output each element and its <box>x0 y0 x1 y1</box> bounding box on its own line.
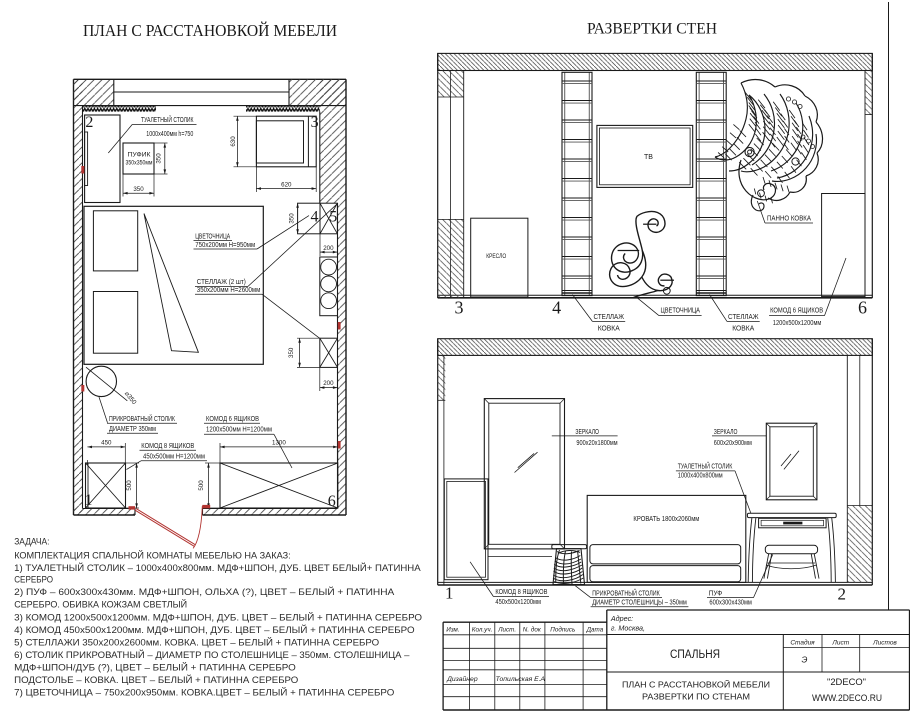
svg-text:ПУФИК: ПУФИК <box>128 151 151 158</box>
svg-text:ДИАМЕТР СТОЛЕШНИЦЫ – 350мм: ДИАМЕТР СТОЛЕШНИЦЫ – 350мм <box>592 600 687 607</box>
svg-text:Лист.: Лист. <box>497 627 516 634</box>
svg-text:СЕРЕБРО: СЕРЕБРО <box>14 575 53 586</box>
svg-text:350: 350 <box>288 347 295 358</box>
svg-text:СТЕЛЛАЖ: СТЕЛЛАЖ <box>728 314 759 321</box>
svg-text:2: 2 <box>85 114 93 131</box>
svg-text:WWW.2DECO.RU: WWW.2DECO.RU <box>812 693 882 703</box>
svg-text:350х350мм: 350х350мм <box>126 159 153 166</box>
svg-text:6) СТОЛИК ПРИКРОВАТНЫЙ – Д: 6) СТОЛИК ПРИКРОВАТНЫЙ – ДИАМЕТР ПО СТОЛ… <box>14 649 410 661</box>
svg-text:ТУАЛЕТНЫЙ СТОЛИК: ТУАЛЕТНЫЙ СТОЛИК <box>678 461 733 470</box>
svg-text:ПАННО КОВКА: ПАННО КОВКА <box>767 216 811 223</box>
svg-text:600х300х430мм: 600х300х430мм <box>709 600 752 607</box>
svg-text:Лист: Лист <box>831 639 849 646</box>
svg-text:ПРИКРОВАТНЫЙ СТОЛИК: ПРИКРОВАТНЫЙ СТОЛИК <box>592 588 660 597</box>
svg-text:ТУАЛЕТНЫЙ СТОЛИК: ТУАЛЕТНЫЙ СТОЛИК <box>141 115 194 124</box>
svg-text:КОМОД 8 ЯЩИКОВ: КОМОД 8 ЯЩИКОВ <box>141 443 194 450</box>
svg-text:КРЕСЛО: КРЕСЛО <box>486 253 506 260</box>
svg-text:Листов: Листов <box>872 639 897 646</box>
svg-text:Кол.уч.: Кол.уч. <box>472 627 493 634</box>
svg-text:620: 620 <box>281 181 292 188</box>
svg-text:СТЕЛЛАЖ: СТЕЛЛАЖ <box>594 314 625 321</box>
svg-text:6: 6 <box>858 298 867 318</box>
svg-text:ПРИКРОВАТНЫЙ СТОЛИК: ПРИКРОВАТНЫЙ СТОЛИК <box>109 414 176 423</box>
svg-text:ЦВЕТОЧНИЦА: ЦВЕТОЧНИЦА <box>195 234 230 241</box>
svg-text:900х20х1800мм: 900х20х1800мм <box>576 440 617 447</box>
svg-text:ПОДСТОЛЬЕ – КОВКА. ЦВЕТ –: ПОДСТОЛЬЕ – КОВКА. ЦВЕТ – БЕЛЫЙ + ПАТИНН… <box>14 674 298 686</box>
svg-text:ПЛАН С РАССТАНОВКОЙ МЕБЕЛИ: ПЛАН С РАССТАНОВКОЙ МЕБЕЛИ <box>83 21 337 40</box>
svg-text:350: 350 <box>288 213 295 224</box>
svg-text:7) ЦВЕТОЧНИЦА – 750х200х950: 7) ЦВЕТОЧНИЦА – 750х200х950мм. КОВКА.ЦВЕ… <box>14 687 394 699</box>
svg-text:600х20х900мм: 600х20х900мм <box>714 440 752 447</box>
svg-text:1) ТУАЛЕТНЫЙ СТОЛИК – 1000: 1) ТУАЛЕТНЫЙ СТОЛИК – 1000х400х800мм. МД… <box>14 562 421 574</box>
svg-text:2: 2 <box>837 584 846 603</box>
svg-text:КОМОД 6 ЯЩИКОВ: КОМОД 6 ЯЩИКОВ <box>206 416 259 423</box>
svg-text:1000х400мм h=750: 1000х400мм h=750 <box>146 131 193 138</box>
svg-text:750х200мм Н=950мм: 750х200мм Н=950мм <box>195 242 255 249</box>
svg-text:450: 450 <box>101 440 112 447</box>
svg-text:6: 6 <box>328 493 336 510</box>
svg-text:Топильская Е.А: Топильская Е.А <box>496 676 546 683</box>
svg-text:КОМОД 8 ЯЩИКОВ: КОМОД 8 ЯЩИКОВ <box>495 589 547 596</box>
svg-text:Дизайнер: Дизайнер <box>446 675 478 683</box>
svg-text:КОМПЛЕКТАЦИЯ СПАЛЬНОЙ КОМНАТ: КОМПЛЕКТАЦИЯ СПАЛЬНОЙ КОМНАТЫ МЕБЕЛЬЮ НА… <box>14 550 291 562</box>
svg-text:350: 350 <box>155 153 162 164</box>
svg-text:Подпись: Подпись <box>550 626 575 634</box>
svg-text:Стадия: Стадия <box>790 638 815 646</box>
svg-text:Адрес:: Адрес: <box>610 614 633 623</box>
svg-text:"2DECO": "2DECO" <box>827 677 866 687</box>
svg-text:Дата: Дата <box>586 627 604 634</box>
svg-text:500: 500 <box>198 480 205 491</box>
svg-text:ЦВЕТОЧНИЦА: ЦВЕТОЧНИЦА <box>661 308 701 315</box>
svg-text:г. Москва,: г. Москва, <box>611 623 645 632</box>
svg-text:КОВКА: КОВКА <box>598 326 620 333</box>
svg-text:ТВ: ТВ <box>644 154 653 161</box>
svg-text:Изм.: Изм. <box>446 627 459 634</box>
svg-text:450х500мм Н=1200мм: 450х500мм Н=1200мм <box>143 454 205 461</box>
svg-text:500: 500 <box>126 480 133 491</box>
svg-text:ПЛАН С РАССТАНОВКОЙ МЕБЕЛИ: ПЛАН С РАССТАНОВКОЙ МЕБЕЛИ <box>622 679 770 690</box>
svg-text:ПУФ: ПУФ <box>709 590 723 597</box>
svg-text:N. док: N. док <box>523 626 542 634</box>
svg-text:1: 1 <box>445 584 454 603</box>
svg-text:1: 1 <box>85 492 93 509</box>
svg-text:КОВКА: КОВКА <box>732 326 754 333</box>
svg-text:4: 4 <box>311 209 319 226</box>
svg-text:СПАЛЬНЯ: СПАЛЬНЯ <box>670 649 720 661</box>
svg-text:200: 200 <box>323 380 334 387</box>
svg-text:СЕРЕБРО. ОБИВКА КОЖЗАМ СВЕТ: СЕРЕБРО. ОБИВКА КОЖЗАМ СВЕТЛЫЙ <box>14 599 187 611</box>
svg-text:РАЗВЕРТКИ СТЕН: РАЗВЕРТКИ СТЕН <box>587 21 717 38</box>
svg-text:ЗАДАЧА:: ЗАДАЧА: <box>14 537 49 548</box>
svg-text:2) ПУФ – 600х300х430мм. МД: 2) ПУФ – 600х300х430мм. МДФ+ШПОН, ОЛЬХА … <box>14 586 395 598</box>
svg-text:СТЕЛЛАЖ (2 шт): СТЕЛЛАЖ (2 шт) <box>197 279 246 286</box>
svg-text:3) КОМОД 1200х500х1200мм. М: 3) КОМОД 1200х500х1200мм. МДФ+ШПОН, ДУБ.… <box>14 612 422 624</box>
svg-text:КОМОД 6 ЯЩИКОВ: КОМОД 6 ЯЩИКОВ <box>770 308 823 315</box>
svg-text:1200х500мм Н=1200мм: 1200х500мм Н=1200мм <box>206 427 272 434</box>
svg-text:630: 630 <box>230 136 237 147</box>
svg-text:МДФ+ШПОН/ДУБ (?), ЦВЕТ – Б: МДФ+ШПОН/ДУБ (?), ЦВЕТ – БЕЛЫЙ + ПАТИННА… <box>14 662 296 674</box>
svg-text:200: 200 <box>323 245 334 252</box>
svg-text:5) СТЕЛЛАЖИ 350х200х2600мм.: 5) СТЕЛЛАЖИ 350х200х2600мм. КОВКА. ЦВЕТ … <box>14 637 379 649</box>
svg-text:Э: Э <box>802 655 808 665</box>
svg-text:РАЗВЕРТКИ ПО СТЕНАМ: РАЗВЕРТКИ ПО СТЕНАМ <box>642 692 750 702</box>
svg-text:КРОВАТЬ 1800х2060мм: КРОВАТЬ 1800х2060мм <box>633 516 699 523</box>
svg-text:1000х400х800мм: 1000х400х800мм <box>678 472 723 479</box>
svg-text:3: 3 <box>311 114 319 131</box>
svg-text:1300: 1300 <box>272 440 286 447</box>
svg-text:1200х500х1200мм: 1200х500х1200мм <box>773 320 822 327</box>
svg-text:350х200мм Н=2600мм: 350х200мм Н=2600мм <box>197 287 261 294</box>
svg-text:5: 5 <box>329 209 337 226</box>
svg-text:ЗЕРКАЛО: ЗЕРКАЛО <box>575 429 599 436</box>
svg-text:450х500х1200мм: 450х500х1200мм <box>495 599 541 606</box>
svg-text:4: 4 <box>552 298 561 318</box>
svg-text:3: 3 <box>455 298 464 318</box>
svg-text:350: 350 <box>133 186 144 193</box>
svg-text:ЗЕРКАЛО: ЗЕРКАЛО <box>714 429 738 436</box>
svg-text:ДИАМЕТР 350мм: ДИАМЕТР 350мм <box>109 426 156 433</box>
svg-text:4) КОМОД 450х500х1200мм. МД: 4) КОМОД 450х500х1200мм. МДФ+ШПОН, ДУБ. … <box>14 624 414 636</box>
